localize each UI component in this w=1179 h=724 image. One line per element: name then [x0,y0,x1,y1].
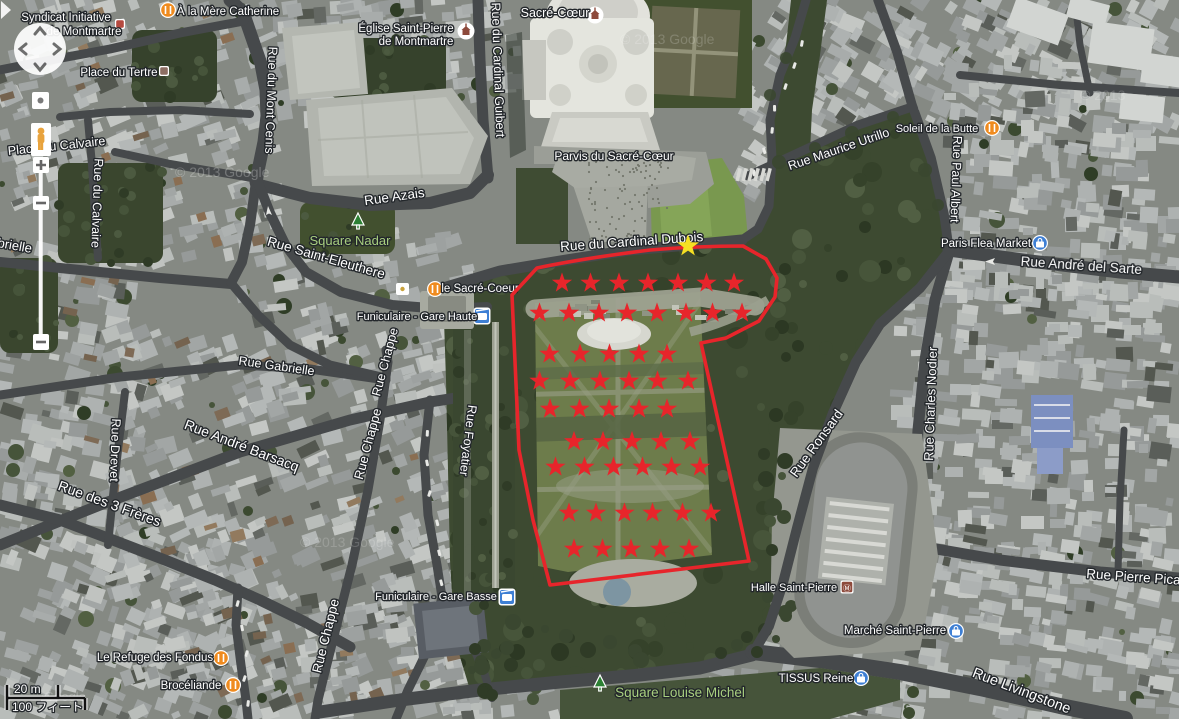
svg-text:TISSUS Reine: TISSUS Reine [779,673,854,685]
svg-text:Le Refuge des Fondus: Le Refuge des Fondus [97,652,214,664]
svg-text:Rue Drevet: Rue Drevet [107,418,123,482]
svg-text:© 2013 Google: © 2013 Google [175,164,270,180]
svg-text:Square Nadar: Square Nadar [310,233,392,248]
svg-text:20 m: 20 m [14,682,41,696]
svg-text:Soleil de la Butte: Soleil de la Butte [896,123,979,135]
svg-text:© 2013 Google: © 2013 Google [300,534,395,550]
svg-text:Paris Flea Market: Paris Flea Market [941,238,1032,250]
svg-text:© 2013 Google: © 2013 Google [620,31,715,47]
svg-text:© 2013: © 2013 [1080,87,1126,103]
svg-text:À la Mère Catherine: À la Mère Catherine [177,5,279,18]
svg-text:100 フィート: 100 フィート [12,700,83,714]
svg-text:de Montmartre: de Montmartre [379,36,454,48]
svg-text:Square Louise Michel: Square Louise Michel [615,685,745,700]
svg-text:Ⓜ: Ⓜ [843,584,851,593]
svg-text:Marché Saint-Pierre: Marché Saint-Pierre [844,625,946,637]
svg-text:Sacré-Cœur: Sacré-Cœur [521,6,590,20]
svg-text:Funiculaire - Gare Basse: Funiculaire - Gare Basse [375,591,497,603]
svg-text:Funiculaire - Gare Haute: Funiculaire - Gare Haute [357,311,477,323]
svg-text:Place du Tertre: Place du Tertre [80,67,157,79]
svg-text:Brocéliande: Brocéliande [161,680,222,692]
svg-text:Parvis du Sacré-Cœur: Parvis du Sacré-Cœur [554,149,673,163]
svg-text:Église Saint-Pierre: Église Saint-Pierre [358,22,453,35]
svg-text:Halle Saint-Pierre: Halle Saint-Pierre [751,582,837,594]
svg-text:le Sacré-Coeur: le Sacré-Coeur [441,283,519,295]
svg-text:Syndicat Initiative: Syndicat Initiative [21,12,111,24]
